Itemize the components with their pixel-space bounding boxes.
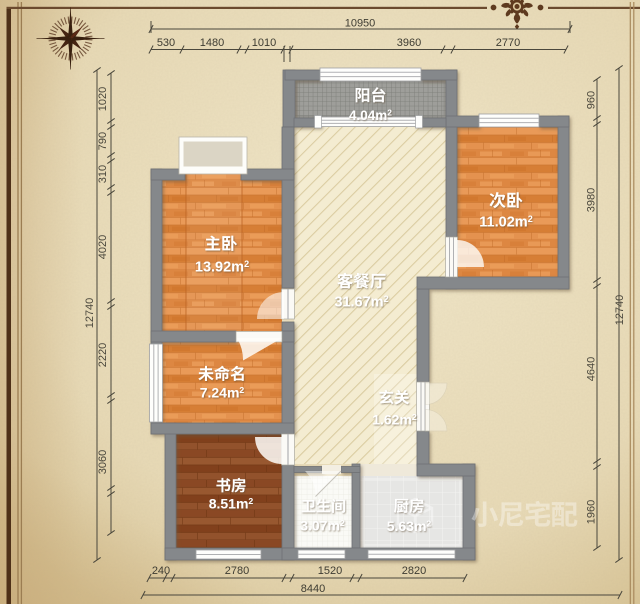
svg-text:1010: 1010 (252, 37, 276, 49)
svg-text:530: 530 (157, 37, 175, 49)
svg-text:1480: 1480 (200, 37, 224, 49)
svg-text:1.62m2: 1.62m2 (372, 412, 417, 428)
svg-text:7.24m2: 7.24m2 (200, 385, 245, 401)
svg-text:2770: 2770 (496, 37, 520, 49)
svg-text:1520: 1520 (318, 565, 342, 577)
svg-text:11.02m2: 11.02m2 (479, 214, 532, 231)
svg-text:790: 790 (97, 132, 109, 150)
svg-text:2780: 2780 (225, 565, 249, 577)
svg-text:960: 960 (586, 91, 598, 109)
svg-text:3960: 3960 (397, 37, 421, 49)
svg-text:2820: 2820 (402, 565, 426, 577)
svg-text:12740: 12740 (614, 295, 626, 326)
svg-text:3980: 3980 (586, 188, 598, 212)
svg-text:31.67m2: 31.67m2 (334, 294, 388, 311)
svg-text:3.07m2: 3.07m2 (300, 518, 345, 534)
svg-text:240: 240 (152, 565, 170, 577)
svg-text:10950: 10950 (345, 18, 376, 30)
svg-text:4640: 4640 (586, 357, 598, 381)
svg-text:2220: 2220 (97, 343, 109, 367)
svg-text:1020: 1020 (97, 87, 109, 111)
svg-text:4.04m2: 4.04m2 (349, 108, 392, 123)
svg-text:12740: 12740 (84, 298, 96, 329)
svg-text:1960: 1960 (586, 500, 598, 524)
svg-text:8.51m2: 8.51m2 (209, 496, 254, 512)
svg-text:310: 310 (97, 165, 109, 183)
svg-text:13.92m2: 13.92m2 (195, 259, 249, 276)
svg-text:5.63m2: 5.63m2 (387, 518, 432, 534)
svg-text:3060: 3060 (97, 450, 109, 474)
svg-text:8440: 8440 (301, 583, 325, 595)
svg-text:4020: 4020 (97, 235, 109, 259)
